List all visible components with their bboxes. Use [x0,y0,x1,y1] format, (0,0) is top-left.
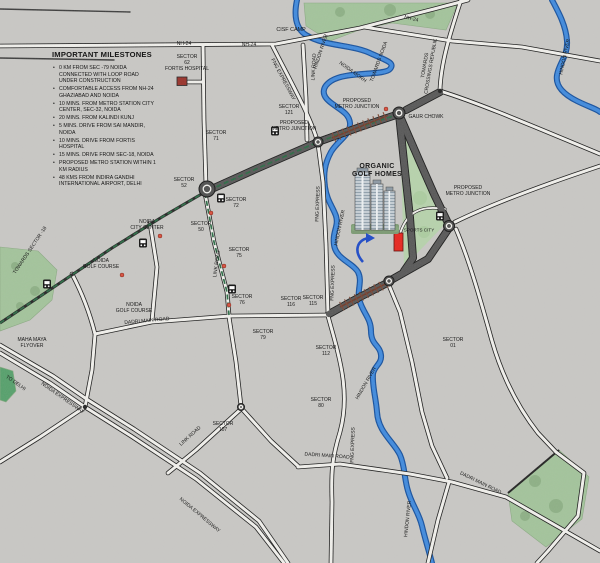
milestones-title: IMPORTANT MILESTONES [52,50,156,59]
milestone-item: 10 MINS. FROM METRO STATION CITY CENTER,… [52,101,156,114]
label-sector-112: SECTOR 112 [316,346,337,358]
label-sector-115: SECTOR 115 [303,296,324,308]
label-sector-79: SECTOR 79 [253,330,274,342]
label-nh24: NH-24 [242,43,256,49]
milestone-item: PROPOSED METRO STATION WITHIN 1 KM RADIU… [52,160,156,173]
label-sector-52: SECTOR 52 [174,178,195,190]
label-gaur-chowk: GAUR CHOWK [409,115,444,121]
label-sector-80: SECTOR 80 [311,398,332,410]
label-noida-golf-course: NOIDA GOLF COURSE [116,303,152,315]
label-organic-golf-homes: ORGANIC GOLF HOMES [352,163,402,180]
label-sector62-fortis: SECTOR 62 FORTIS HOSPITAL [165,55,209,73]
label-nh24: NH-24 [177,42,191,48]
label-cisf-camp: CISF CAMP [276,27,305,33]
label-sector-121: SECTOR 121 [279,105,300,117]
label-sector-72: SECTOR 72 [226,198,247,210]
milestones-panel: IMPORTANT MILESTONES 0 KM FROM SEC -79 N… [52,50,156,189]
milestone-item: 5 MINS. DRIVE FROM SAI MANDIR, NOIDA [52,123,156,136]
label-sector-107: SECTOR 107 [213,422,234,434]
label-sector-75: SECTOR 75 [229,248,250,260]
milestone-item: 0 KM FROM SEC -79 NOIDA CONNECTED WITH L… [52,65,156,85]
label-fng-express: FNG EXPRESS [350,427,357,463]
milestone-item: 20 MINS. FROM KALINDI KUNJ [52,115,156,122]
label-proposed-metro-junction: PROPOSED METRO JUNCTION [335,99,380,111]
label-proposed-metro-junction: PROPOSED METRO JUNCTION [446,186,491,198]
label-fng-express: FNG EXPRESS [315,186,322,222]
milestone-item: COMFORTABLE ACCESS FROM NH-24 GHAZIABAD … [52,86,156,99]
label-maha-maya-flyover: MAHA MAYA FLYOVER [18,338,47,350]
location-map: IMPORTANT MILESTONES 0 KM FROM SEC -79 N… [0,0,600,563]
milestone-item: 10 MINS. DRIVE FROM FORTIS HOSPITAL [52,138,156,151]
label-sector-50: SECTOR 50 [191,222,212,234]
milestone-item: 15 MINS. DRIVE FROM SEC-18, NOIDA [52,152,156,159]
label-proposed-metro-junction: PROPOSED METRO JUNCTION [272,121,317,133]
label-fng-express: FNG EXPRESS [330,265,337,301]
milestone-item: 48 KMS FROM INDIRA GANDHI INTERNATIONAL … [52,175,156,188]
label-sector-76: SECTOR 76 [232,295,253,307]
label-noida-golf-course: NOIDA GOLF COURSE [83,259,119,271]
label-sports-city: SPORTS CITY [404,227,435,232]
milestones-list: 0 KM FROM SEC -79 NOIDA CONNECTED WITH L… [52,65,156,188]
label-sector-71: SECTOR 71 [206,131,227,143]
label-sector-01: SECTOR 01 [443,338,464,350]
label-sector-116: SECTOR 116 [281,297,302,309]
label-noida-city-center: NOIDA CITY CENTER [130,220,163,232]
